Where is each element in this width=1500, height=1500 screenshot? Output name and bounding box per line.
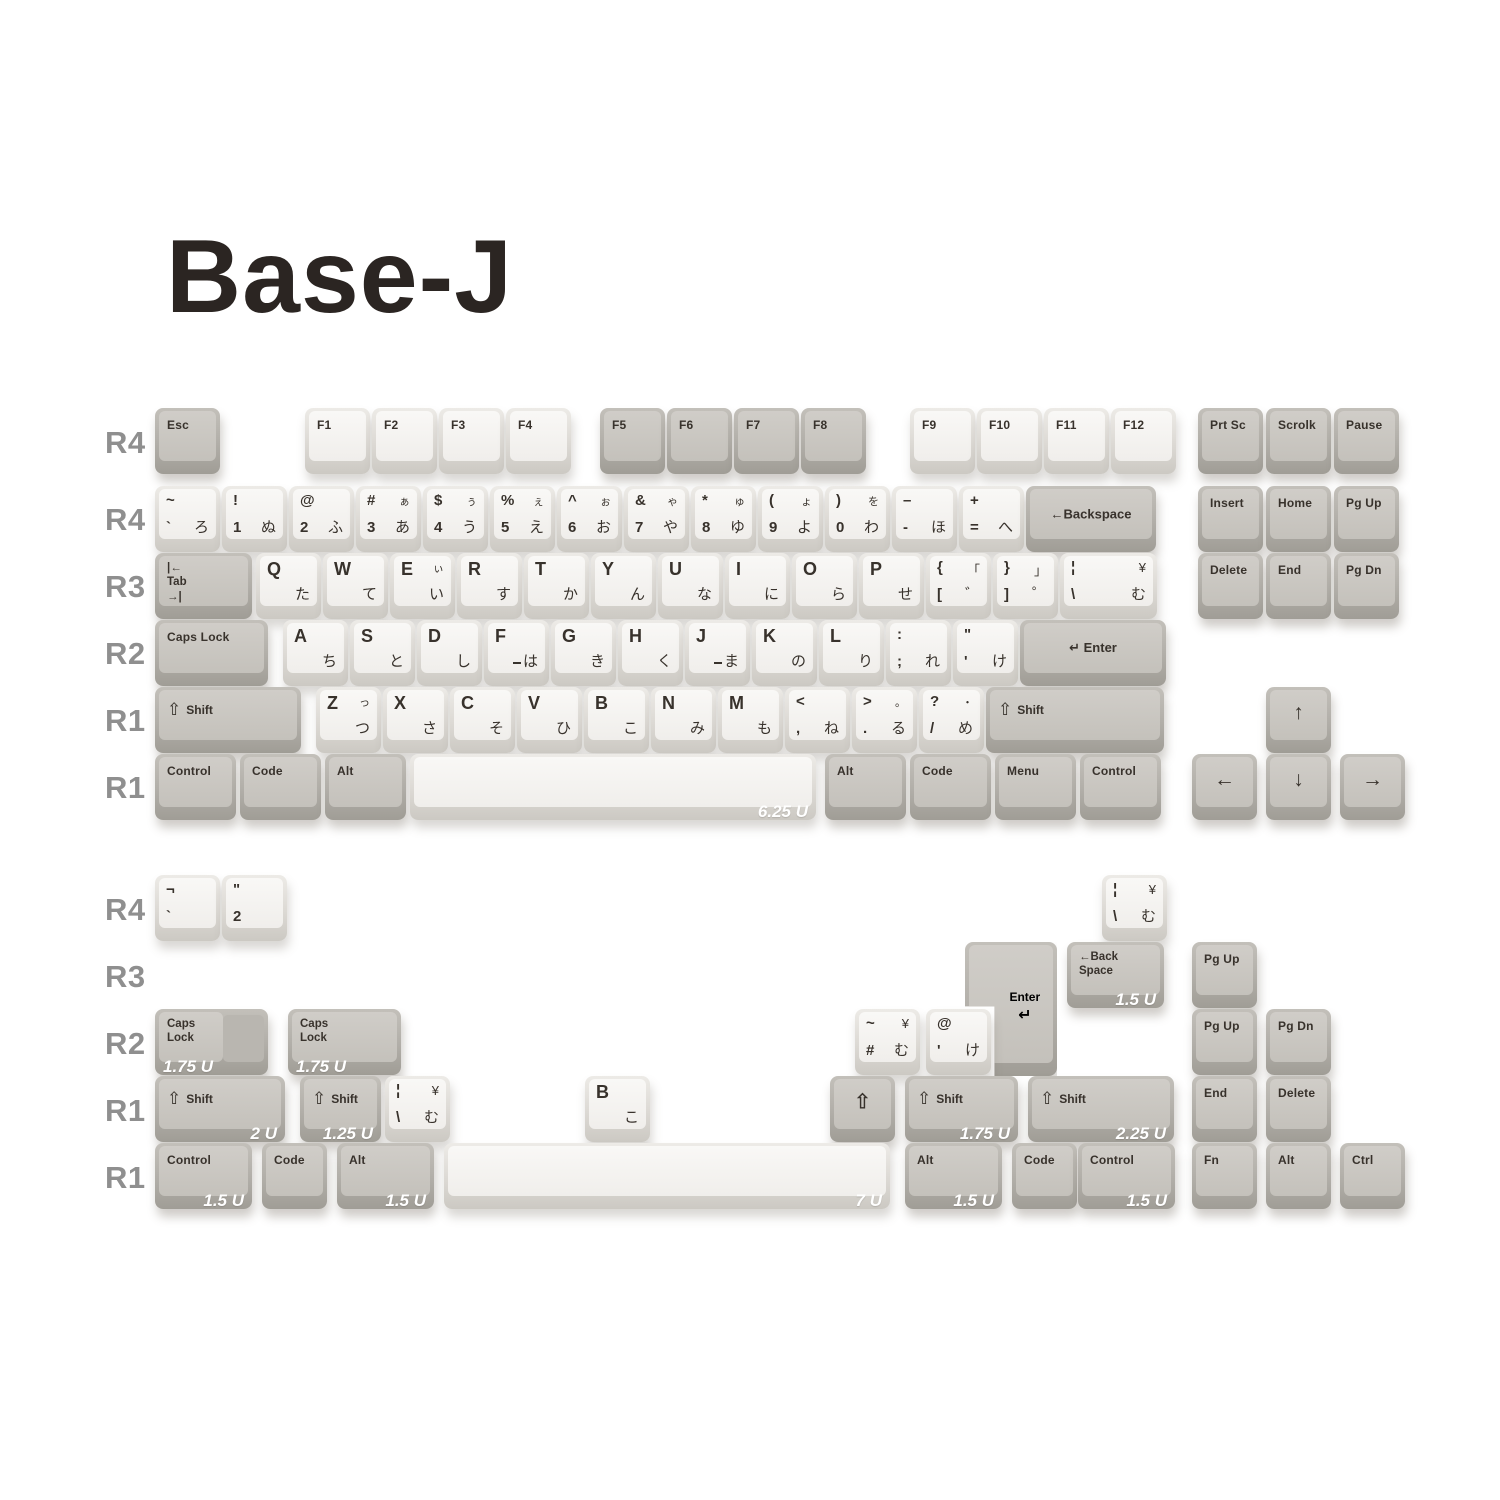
key-legend: て bbox=[362, 583, 377, 604]
key-legend: Control bbox=[1090, 1153, 1134, 1167]
key-legend: O bbox=[803, 559, 817, 580]
key-legend: Shift bbox=[331, 1092, 358, 1106]
key-back-space-15: ←BackSpace1.5 U bbox=[1067, 942, 1164, 1008]
key-legend: * bbox=[702, 492, 708, 509]
key-legend: ぉ bbox=[600, 493, 611, 509]
key-b: Bこ bbox=[584, 687, 649, 753]
key-c: Cそ bbox=[450, 687, 515, 753]
key-legend: End bbox=[1278, 563, 1301, 577]
key-legend: き bbox=[590, 650, 605, 671]
key-f1: F1 bbox=[305, 408, 370, 474]
key-m: Mも bbox=[718, 687, 783, 753]
key-alt-2: "2 bbox=[222, 875, 287, 941]
key-legend: F2 bbox=[384, 418, 398, 432]
key-legend: Shift bbox=[936, 1092, 963, 1106]
key-legend: う bbox=[462, 516, 477, 537]
key-legend: す bbox=[496, 583, 511, 604]
key-legend: ( bbox=[769, 492, 774, 509]
key-legend: 8 bbox=[702, 519, 710, 536]
key-pg-dn: Pg Dn bbox=[1334, 553, 1399, 619]
key-num-4: $ぅ4う bbox=[423, 486, 488, 552]
caps-lock-step bbox=[223, 1015, 264, 1062]
key-tab: |←Tab→| bbox=[155, 553, 252, 619]
row-label: R2 bbox=[105, 1026, 146, 1062]
key-legend: む bbox=[1131, 583, 1146, 604]
key-legend: End bbox=[1204, 1086, 1227, 1100]
key-control-left: Control bbox=[155, 754, 236, 820]
key-arrow-left: ← bbox=[1192, 754, 1257, 820]
key-legend: F12 bbox=[1123, 418, 1144, 432]
key-legend: ぬ bbox=[261, 516, 276, 537]
key-f11: F11 bbox=[1044, 408, 1109, 474]
key-num-9: (ょ9よ bbox=[758, 486, 823, 552]
key-caps-lock-175-stepped: CapsLock1.75 U bbox=[155, 1009, 268, 1075]
key-shift-125: ⇧Shift1.25 U bbox=[300, 1076, 381, 1142]
key-k: Kの bbox=[752, 620, 817, 686]
key-legend: H bbox=[629, 626, 642, 647]
row-label: R4 bbox=[105, 892, 146, 928]
key-legend: X bbox=[394, 693, 406, 714]
page-title: Base-J bbox=[166, 218, 513, 337]
key-legend: 2 bbox=[233, 908, 241, 925]
key-quote: "'け bbox=[953, 620, 1018, 686]
size-label: 1.5 U bbox=[1115, 990, 1156, 1010]
size-label: 1.5 U bbox=[203, 1191, 244, 1211]
key-legend: 7 bbox=[635, 519, 643, 536]
key-f7: F7 bbox=[734, 408, 799, 474]
key-legend: L bbox=[830, 626, 841, 647]
key-alt-15-left: Alt1.5 U bbox=[337, 1143, 434, 1209]
key-legend: Menu bbox=[1007, 764, 1039, 778]
key-period: >。.る bbox=[852, 687, 917, 753]
key-a: Aち bbox=[283, 620, 348, 686]
key-legend: も bbox=[757, 717, 772, 738]
key-legend: 4 bbox=[434, 519, 442, 536]
key-shift-175: ⇧Shift1.75 U bbox=[905, 1076, 1018, 1142]
key-legend: M bbox=[729, 693, 744, 714]
key-legend: Alt bbox=[837, 764, 854, 778]
key-alt-15-right: Alt1.5 U bbox=[905, 1143, 1002, 1209]
key-num-8: *ゅ8ゆ bbox=[691, 486, 756, 552]
key-caps-lock-175: CapsLock1.75 U bbox=[288, 1009, 401, 1075]
key-legend: N bbox=[662, 693, 675, 714]
key-legend: 。 bbox=[895, 694, 906, 710]
shift-arrow-icon: ⇧ bbox=[167, 700, 181, 720]
key-legend: ; bbox=[897, 653, 902, 670]
key-pg-up-r3: Pg Up bbox=[1192, 942, 1257, 1008]
key-legend: Prt Sc bbox=[1210, 418, 1246, 432]
arrow-right-icon: → bbox=[1362, 768, 1383, 792]
key-legend: Scrolk bbox=[1278, 418, 1316, 432]
key-legend: |← bbox=[167, 561, 187, 575]
key-legend: ろ bbox=[194, 516, 209, 537]
key-legend: G bbox=[562, 626, 576, 647]
shift-legend: ⇧Shift bbox=[1040, 1089, 1086, 1109]
key-legend: - bbox=[903, 519, 908, 536]
shift-legend: ⇧Shift bbox=[167, 1089, 213, 1109]
key-backslash: ¦¥\む bbox=[1060, 553, 1157, 619]
key-legend: り bbox=[858, 650, 873, 671]
shift-arrow-icon: ⇧ bbox=[1040, 1089, 1054, 1109]
key-o: Oら bbox=[792, 553, 857, 619]
key-legend: ¦ bbox=[396, 1082, 400, 1099]
key-pg-up: Pg Up bbox=[1334, 486, 1399, 552]
key-f5: F5 bbox=[600, 408, 665, 474]
key-scrolk: Scrolk bbox=[1266, 408, 1331, 474]
key-legend: は bbox=[513, 650, 538, 671]
key-legend: Fn bbox=[1204, 1153, 1219, 1167]
arrow-up-icon: ↑ bbox=[1293, 701, 1304, 725]
key-legend: く bbox=[657, 650, 672, 671]
key-legend: Pg Up bbox=[1204, 1019, 1240, 1033]
arrow-down-icon: ↓ bbox=[1293, 768, 1304, 792]
key-legend: →| bbox=[167, 590, 187, 604]
size-label: 1.5 U bbox=[1126, 1191, 1167, 1211]
shift-legend: ⇧Shift bbox=[998, 700, 1044, 720]
key-legend: Delete bbox=[1210, 563, 1247, 577]
key-legend: T bbox=[535, 559, 546, 580]
key-legend: – bbox=[903, 492, 911, 509]
key-alt-tilde: ¬` bbox=[155, 875, 220, 941]
key-legend: 「 bbox=[967, 560, 980, 579]
key-legend: れ bbox=[925, 650, 940, 671]
key-legend: Pg Dn bbox=[1346, 563, 1382, 577]
key-legend: ら bbox=[831, 583, 846, 604]
key-legend: Q bbox=[267, 559, 281, 580]
row-label: R4 bbox=[105, 425, 146, 461]
key-legend: け bbox=[992, 650, 1007, 671]
key-shift-right: ⇧Shift bbox=[986, 687, 1164, 753]
key-legend: や bbox=[663, 516, 678, 537]
size-label: 2 U bbox=[251, 1124, 277, 1144]
key-legend: ほ bbox=[931, 516, 946, 537]
key-legend: Code bbox=[922, 764, 953, 778]
key-legend: V bbox=[528, 693, 540, 714]
key-legend: た bbox=[295, 583, 310, 604]
key-spacebar-7u: 7 U bbox=[444, 1143, 890, 1209]
size-label: 1.75 U bbox=[163, 1057, 213, 1077]
key-legend: ふ bbox=[328, 516, 343, 537]
key-alt-at: @'け bbox=[926, 1009, 991, 1075]
shift-arrow-icon: ⇧ bbox=[917, 1089, 931, 1109]
key-legend: ] bbox=[1004, 586, 1009, 603]
key-legend: @ bbox=[937, 1015, 952, 1032]
key-legend: Insert bbox=[1210, 496, 1244, 510]
key-legend: Home bbox=[1278, 496, 1312, 510]
key-legend: ^ bbox=[568, 492, 577, 509]
key-legend: Control bbox=[1092, 764, 1136, 778]
key-caps-lock: Caps Lock bbox=[155, 620, 268, 686]
row-label: R3 bbox=[105, 569, 146, 605]
key-legend: ¥ bbox=[1149, 882, 1156, 897]
key-legend: \ bbox=[396, 1109, 400, 1126]
key-g: Gき bbox=[551, 620, 616, 686]
key-semicolon: :;れ bbox=[886, 620, 951, 686]
key-legend: + bbox=[970, 492, 979, 509]
key-alt-left: Alt bbox=[325, 754, 406, 820]
key-legend: ゅ bbox=[734, 493, 745, 509]
key-legend: の bbox=[791, 650, 806, 671]
key-legend: Code bbox=[1024, 1153, 1055, 1167]
key-pause: Pause bbox=[1334, 408, 1399, 474]
key-z: Zっつ bbox=[316, 687, 381, 753]
key-slash: ?・/め bbox=[919, 687, 984, 753]
key-fn: Fn bbox=[1192, 1143, 1257, 1209]
key-legend: わ bbox=[864, 516, 879, 537]
key-legend: F4 bbox=[518, 418, 532, 432]
key-legend: Lock bbox=[167, 1031, 195, 1045]
shift-legend: ⇧Shift bbox=[312, 1089, 358, 1109]
key-legend: ! bbox=[233, 492, 238, 509]
key-legend: F11 bbox=[1056, 418, 1077, 432]
key-rbracket: }」]゜ bbox=[993, 553, 1058, 619]
size-label: 1.5 U bbox=[385, 1191, 426, 1211]
key-alt-1u: Alt bbox=[1266, 1143, 1331, 1209]
key-legend: Pg Up bbox=[1204, 952, 1240, 966]
key-legend: F8 bbox=[813, 418, 827, 432]
size-label: 1.25 U bbox=[323, 1124, 373, 1144]
key-legend: ぃ bbox=[433, 560, 444, 576]
key-legend: = bbox=[970, 519, 979, 536]
key-h: Hく bbox=[618, 620, 683, 686]
key-lbracket: {「[゛ bbox=[926, 553, 991, 619]
key-l: Lり bbox=[819, 620, 884, 686]
key-legend: ←Back bbox=[1079, 950, 1118, 964]
key-legend: ~ bbox=[166, 492, 175, 509]
key-pg-up-r2: Pg Up bbox=[1192, 1009, 1257, 1075]
key-legend: ↵ Enter bbox=[1069, 640, 1117, 656]
key-num-5: %ぇ5え bbox=[490, 486, 555, 552]
size-label: 1.75 U bbox=[960, 1124, 1010, 1144]
return-arrow-icon: ↵ bbox=[1018, 1006, 1031, 1027]
key-u: Uな bbox=[658, 553, 723, 619]
key-legend: ね bbox=[824, 717, 839, 738]
key-minus: –-ほ bbox=[892, 486, 957, 552]
key-legend: B bbox=[596, 1082, 609, 1103]
key-legend: Shift bbox=[186, 1092, 213, 1106]
key-e: Eぃい bbox=[390, 553, 455, 619]
key-legend: 1 bbox=[233, 519, 241, 536]
arrow-left-icon: ← bbox=[1214, 768, 1235, 792]
key-legend: U bbox=[669, 559, 682, 580]
key-yen-r1: ¦¥\む bbox=[385, 1076, 450, 1142]
key-tilde: ~`ろ bbox=[155, 486, 220, 552]
key-legend: ¥ bbox=[1139, 560, 1146, 575]
key-legend: \ bbox=[1071, 586, 1075, 603]
key-num-3: #ぁ3あ bbox=[356, 486, 421, 552]
key-control-15-left: Control1.5 U bbox=[155, 1143, 252, 1209]
key-legend: ゃ bbox=[667, 493, 678, 509]
size-label: 1.5 U bbox=[953, 1191, 994, 1211]
key-legend: F7 bbox=[746, 418, 760, 432]
key-legend: Pause bbox=[1346, 418, 1382, 432]
key-legend: ? bbox=[930, 693, 939, 710]
key-legend: . bbox=[863, 720, 867, 737]
key-legend: ぅ bbox=[466, 493, 477, 509]
key-esc: Esc bbox=[155, 408, 220, 474]
key-legend: ¦ bbox=[1113, 881, 1117, 898]
key-legend: ~ bbox=[866, 1015, 875, 1032]
key-legend: F3 bbox=[451, 418, 465, 432]
key-legend: F9 bbox=[922, 418, 936, 432]
key-legend: ・ bbox=[962, 694, 973, 710]
key-arrow-up: ↑ bbox=[1266, 687, 1331, 753]
key-equals: +=へ bbox=[959, 486, 1024, 552]
key-w: Wて bbox=[323, 553, 388, 619]
key-legend: そ bbox=[489, 717, 504, 738]
key-code-1u-left: Code bbox=[262, 1143, 327, 1209]
key-legend: % bbox=[501, 492, 514, 509]
key-legend: < bbox=[796, 693, 805, 710]
key-legend: し bbox=[456, 650, 471, 671]
key-legend: Caps bbox=[167, 1017, 195, 1031]
key-f8: F8 bbox=[801, 408, 866, 474]
key-legend: Alt bbox=[1278, 1153, 1295, 1167]
key-legend: K bbox=[763, 626, 776, 647]
key-legend: ` bbox=[166, 519, 171, 536]
key-spacebar-625: 6.25 U bbox=[410, 754, 816, 820]
row-label: R1 bbox=[105, 770, 146, 806]
key-legend: せ bbox=[898, 583, 913, 604]
key-legend: S bbox=[361, 626, 373, 647]
key-legend: 5 bbox=[501, 519, 509, 536]
key-y: Yん bbox=[591, 553, 656, 619]
key-legend: @ bbox=[300, 492, 315, 509]
key-alt-hash-yen: ~¥#む bbox=[855, 1009, 920, 1075]
key-legend: R bbox=[468, 559, 481, 580]
key-legend: Z bbox=[327, 693, 338, 714]
key-legend: Caps bbox=[300, 1017, 328, 1031]
key-legend: P bbox=[870, 559, 882, 580]
key-legend: と bbox=[389, 650, 404, 671]
key-arrow-right: → bbox=[1340, 754, 1405, 820]
key-legend: み bbox=[690, 717, 705, 738]
key-legend: ぁ bbox=[399, 493, 410, 509]
key-legend: ←Backspace bbox=[1051, 507, 1132, 522]
row-label: R1 bbox=[105, 1160, 146, 1196]
key-legend: Shift bbox=[186, 703, 213, 717]
key-num-6: ^ぉ6お bbox=[557, 486, 622, 552]
enter-legend: Enter↵ bbox=[993, 990, 1057, 1026]
key-legend: ¥ bbox=[432, 1083, 439, 1098]
key-legend: Y bbox=[602, 559, 614, 580]
key-alt-yen-r4: ¦¥\む bbox=[1102, 875, 1167, 941]
key-legend: 2 bbox=[300, 519, 308, 536]
key-f: Fは bbox=[484, 620, 549, 686]
key-legend: む bbox=[424, 1106, 439, 1127]
row-label: R3 bbox=[105, 959, 146, 995]
key-legend: Shift bbox=[1017, 703, 1044, 717]
key-f12: F12 bbox=[1111, 408, 1176, 474]
row-label: R1 bbox=[105, 703, 146, 739]
key-legend: Control bbox=[167, 764, 211, 778]
key-control-right: Control bbox=[1080, 754, 1161, 820]
key-comma: <,ね bbox=[785, 687, 850, 753]
key-legend: 」 bbox=[1034, 560, 1047, 579]
key-legend: Caps Lock bbox=[167, 630, 230, 644]
key-legend: 0 bbox=[836, 519, 844, 536]
key-legend: ち bbox=[322, 650, 337, 671]
key-legend: $ bbox=[434, 492, 442, 509]
key-legend: Alt bbox=[917, 1153, 934, 1167]
size-label: 2.25 U bbox=[1116, 1124, 1166, 1144]
key-shift-225: ⇧Shift2.25 U bbox=[1028, 1076, 1174, 1142]
key-legend: C bbox=[461, 693, 474, 714]
key-legend: Code bbox=[252, 764, 283, 778]
key-legend: な bbox=[697, 583, 712, 604]
key-legend: つ bbox=[355, 717, 370, 738]
key-legend: ' bbox=[964, 653, 968, 670]
key-legend: ゜ bbox=[1032, 583, 1047, 604]
key-legend-lines: CapsLock bbox=[167, 1017, 195, 1046]
key-legend: E bbox=[401, 559, 413, 580]
key-f2: F2 bbox=[372, 408, 437, 474]
key-control-15-right: Control1.5 U bbox=[1078, 1143, 1175, 1209]
key-f10: F10 bbox=[977, 408, 1042, 474]
key-num-2: @2ふ bbox=[289, 486, 354, 552]
key-num-0: )を0わ bbox=[825, 486, 890, 552]
key-legend: ` bbox=[166, 908, 171, 925]
key-v: Vひ bbox=[517, 687, 582, 753]
key-insert: Insert bbox=[1198, 486, 1263, 552]
key-legend: 9 bbox=[769, 519, 777, 536]
key-legend: ぇ bbox=[533, 493, 544, 509]
key-p: Pせ bbox=[859, 553, 924, 619]
key-legend: Code bbox=[274, 1153, 305, 1167]
row-label: R1 bbox=[105, 1093, 146, 1129]
key-legend: け bbox=[965, 1039, 980, 1060]
key-code-left: Code bbox=[240, 754, 321, 820]
key-i: Iに bbox=[725, 553, 790, 619]
key-d: Dし bbox=[417, 620, 482, 686]
key-legend: Alt bbox=[349, 1153, 366, 1167]
key-legend: Control bbox=[167, 1153, 211, 1167]
key-x: Xさ bbox=[383, 687, 448, 753]
key-legend: } bbox=[1004, 559, 1010, 576]
key-legend: Shift bbox=[1059, 1092, 1086, 1106]
key-ctrl-1u: Ctrl bbox=[1340, 1143, 1405, 1209]
key-legend: F6 bbox=[679, 418, 693, 432]
key-legend: よ bbox=[797, 516, 812, 537]
key-legend: む bbox=[1141, 905, 1156, 926]
key-t: Tか bbox=[524, 553, 589, 619]
key-legend: っ bbox=[359, 694, 370, 710]
key-legend: へ bbox=[998, 516, 1013, 537]
shift-arrow-icon: ⇧ bbox=[312, 1089, 326, 1109]
key-legend: > bbox=[863, 693, 872, 710]
key-legend: F1 bbox=[317, 418, 331, 432]
key-legend: め bbox=[958, 717, 973, 738]
key-num-1: !1ぬ bbox=[222, 486, 287, 552]
key-legend-lines: |←Tab→| bbox=[167, 561, 187, 604]
key-legend: Pg Dn bbox=[1278, 1019, 1314, 1033]
key-legend: ) bbox=[836, 492, 841, 509]
key-legend: Alt bbox=[337, 764, 354, 778]
key-legend: { bbox=[937, 559, 943, 576]
key-f9: F9 bbox=[910, 408, 975, 474]
key-r: Rす bbox=[457, 553, 522, 619]
key-legend: Lock bbox=[300, 1031, 328, 1045]
key-legend: Space bbox=[1079, 964, 1118, 978]
key-legend: F5 bbox=[612, 418, 626, 432]
row-label: R4 bbox=[105, 502, 146, 538]
key-legend: I bbox=[736, 559, 741, 580]
key-s: Sと bbox=[350, 620, 415, 686]
key-legend: い bbox=[429, 583, 444, 604]
size-label: 7 U bbox=[856, 1191, 882, 1211]
key-legend: W bbox=[334, 559, 351, 580]
key-legend: む bbox=[894, 1039, 909, 1060]
